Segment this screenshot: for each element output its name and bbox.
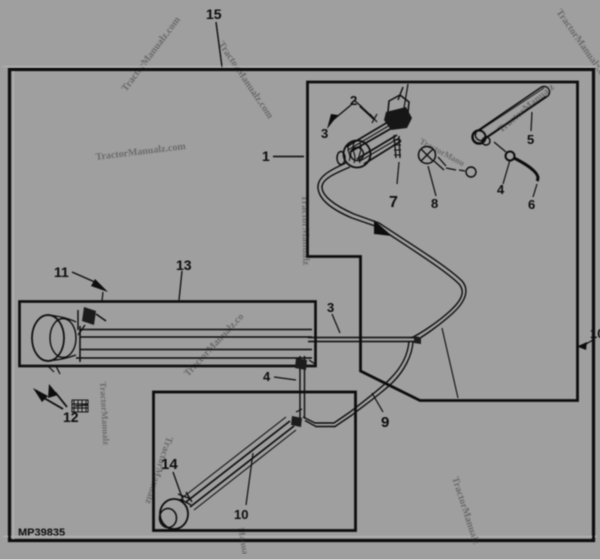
svg-text:13: 13 <box>176 257 192 273</box>
svg-text:10: 10 <box>234 507 248 522</box>
svg-text:9: 9 <box>381 414 389 431</box>
svg-text:15: 15 <box>206 6 222 22</box>
svg-text:11: 11 <box>54 264 69 280</box>
svg-text:4: 4 <box>263 369 271 384</box>
svg-text:MP39835: MP39835 <box>18 527 65 539</box>
svg-text:6: 6 <box>528 197 535 212</box>
svg-text:7: 7 <box>389 194 398 211</box>
svg-text:12: 12 <box>63 409 79 425</box>
svg-text:5: 5 <box>527 132 534 147</box>
svg-text:3: 3 <box>327 300 334 315</box>
svg-text:1: 1 <box>262 148 270 164</box>
svg-text:4: 4 <box>497 182 505 197</box>
svg-text:3: 3 <box>321 126 328 141</box>
svg-text:14: 14 <box>161 456 178 473</box>
svg-text:10: 10 <box>590 326 600 341</box>
svg-text:8: 8 <box>431 196 438 211</box>
